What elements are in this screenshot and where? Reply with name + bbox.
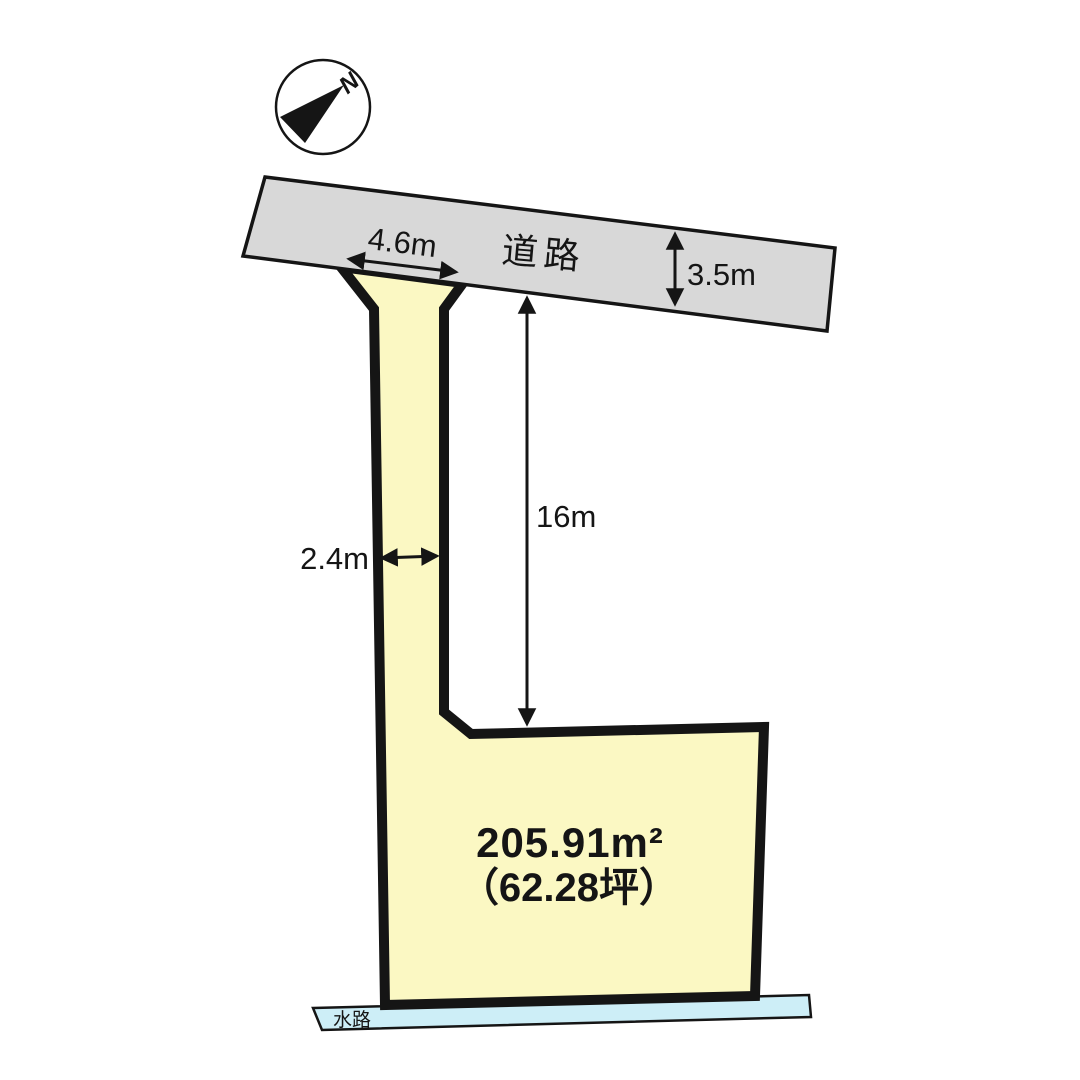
road-name-label: 道路 — [500, 229, 587, 277]
flagpole-depth-dimension-label: 16m — [536, 499, 596, 534]
compass: N — [276, 60, 370, 154]
site-plan-canvas: N 4.6m 道路 3.5m 16m 2.4m 205.91m² （62.28坪… — [0, 0, 1080, 1080]
waterway-name-label: 水路 — [333, 1009, 371, 1031]
parcel-area-tsubo-label: （62.28坪） — [459, 866, 679, 910]
land-plot-diagram: N 4.6m 道路 3.5m 16m 2.4m 205.91m² （62.28坪… — [0, 0, 1080, 1080]
road-width-dimension-label: 3.5m — [687, 257, 756, 292]
flagpole-width-dimension-arrow — [382, 556, 437, 558]
flagpole-width-dimension-label: 2.4m — [300, 541, 369, 576]
parcel-area-sqm-label: 205.91m² — [476, 819, 664, 866]
